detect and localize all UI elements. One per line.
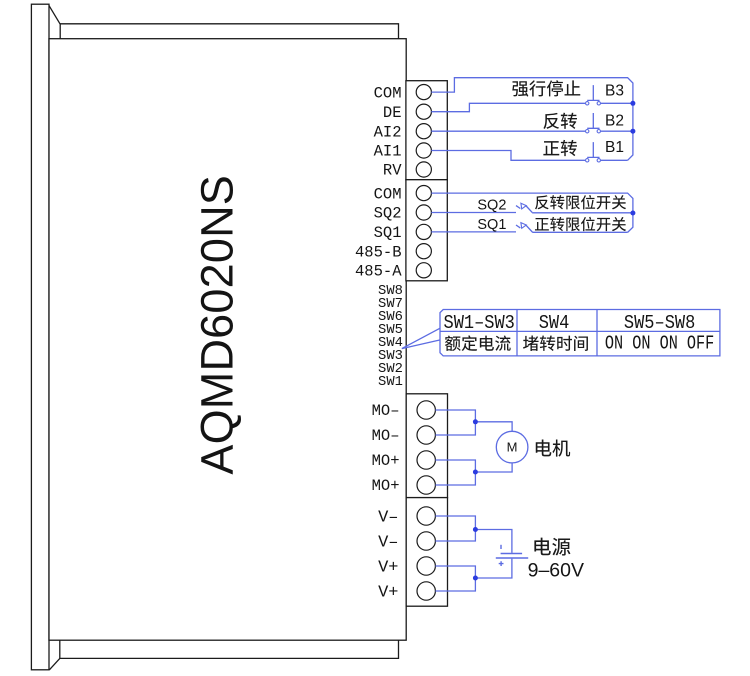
svg-text:SW1–SW3: SW1–SW3 xyxy=(444,313,515,334)
svg-text:MO–: MO– xyxy=(372,427,400,445)
svg-text:AI2: AI2 xyxy=(374,123,402,141)
svg-text:9–60V: 9–60V xyxy=(528,560,584,582)
svg-text:V+: V+ xyxy=(378,558,398,577)
svg-text:B2: B2 xyxy=(605,112,624,129)
svg-text:485-B: 485-B xyxy=(355,243,402,261)
svg-text:V–: V– xyxy=(378,508,398,527)
svg-text:M: M xyxy=(507,440,518,455)
svg-text:SW5–SW8: SW5–SW8 xyxy=(624,313,695,334)
svg-text:B3: B3 xyxy=(605,83,624,100)
svg-text:V+: V+ xyxy=(378,583,398,602)
svg-text:SQ1: SQ1 xyxy=(374,224,402,242)
svg-text:COM: COM xyxy=(374,185,402,203)
svg-text:SW4: SW4 xyxy=(539,313,570,334)
svg-text:485-A: 485-A xyxy=(355,263,402,281)
svg-text:MO–: MO– xyxy=(372,402,400,420)
svg-text:B1: B1 xyxy=(605,139,624,156)
svg-text:SQ2: SQ2 xyxy=(477,197,506,213)
svg-text:MO+: MO+ xyxy=(372,452,400,470)
svg-text:SQ2: SQ2 xyxy=(374,205,402,223)
svg-text:ON ON ON OFF: ON ON ON OFF xyxy=(605,334,714,355)
svg-text:DE: DE xyxy=(383,104,402,122)
svg-text:RV: RV xyxy=(383,162,402,180)
svg-text:V–: V– xyxy=(378,533,398,552)
svg-text:AI1: AI1 xyxy=(374,143,402,161)
svg-text:SW1: SW1 xyxy=(378,375,403,390)
svg-text:SQ1: SQ1 xyxy=(477,217,506,233)
svg-text:AQMD6020NS: AQMD6020NS xyxy=(191,175,242,475)
svg-text:MO+: MO+ xyxy=(372,477,400,495)
svg-text:COM: COM xyxy=(374,84,402,102)
